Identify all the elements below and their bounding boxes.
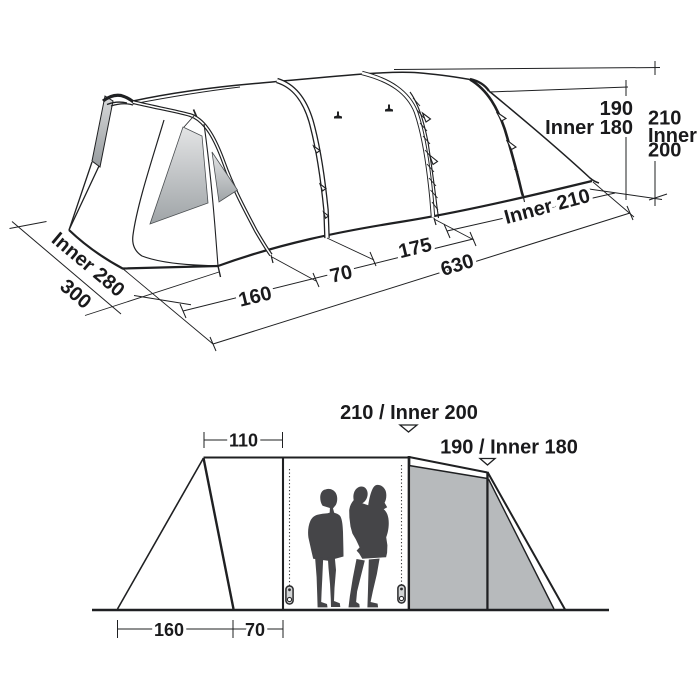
svg-text:200: 200: [648, 140, 681, 162]
svg-text:300: 300: [56, 275, 96, 313]
svg-text:630: 630: [438, 250, 476, 281]
svg-text:160: 160: [154, 620, 184, 640]
svg-text:210 / Inner 200: 210 / Inner 200: [340, 402, 478, 424]
svg-text:160: 160: [236, 282, 274, 311]
svg-text:175: 175: [396, 234, 434, 263]
svg-text:Inner 180: Inner 180: [545, 117, 633, 139]
svg-text:110: 110: [229, 431, 258, 451]
svg-text:70: 70: [245, 620, 265, 640]
svg-text:70: 70: [328, 261, 355, 288]
svg-text:190 / Inner 180: 190 / Inner 180: [440, 437, 578, 459]
